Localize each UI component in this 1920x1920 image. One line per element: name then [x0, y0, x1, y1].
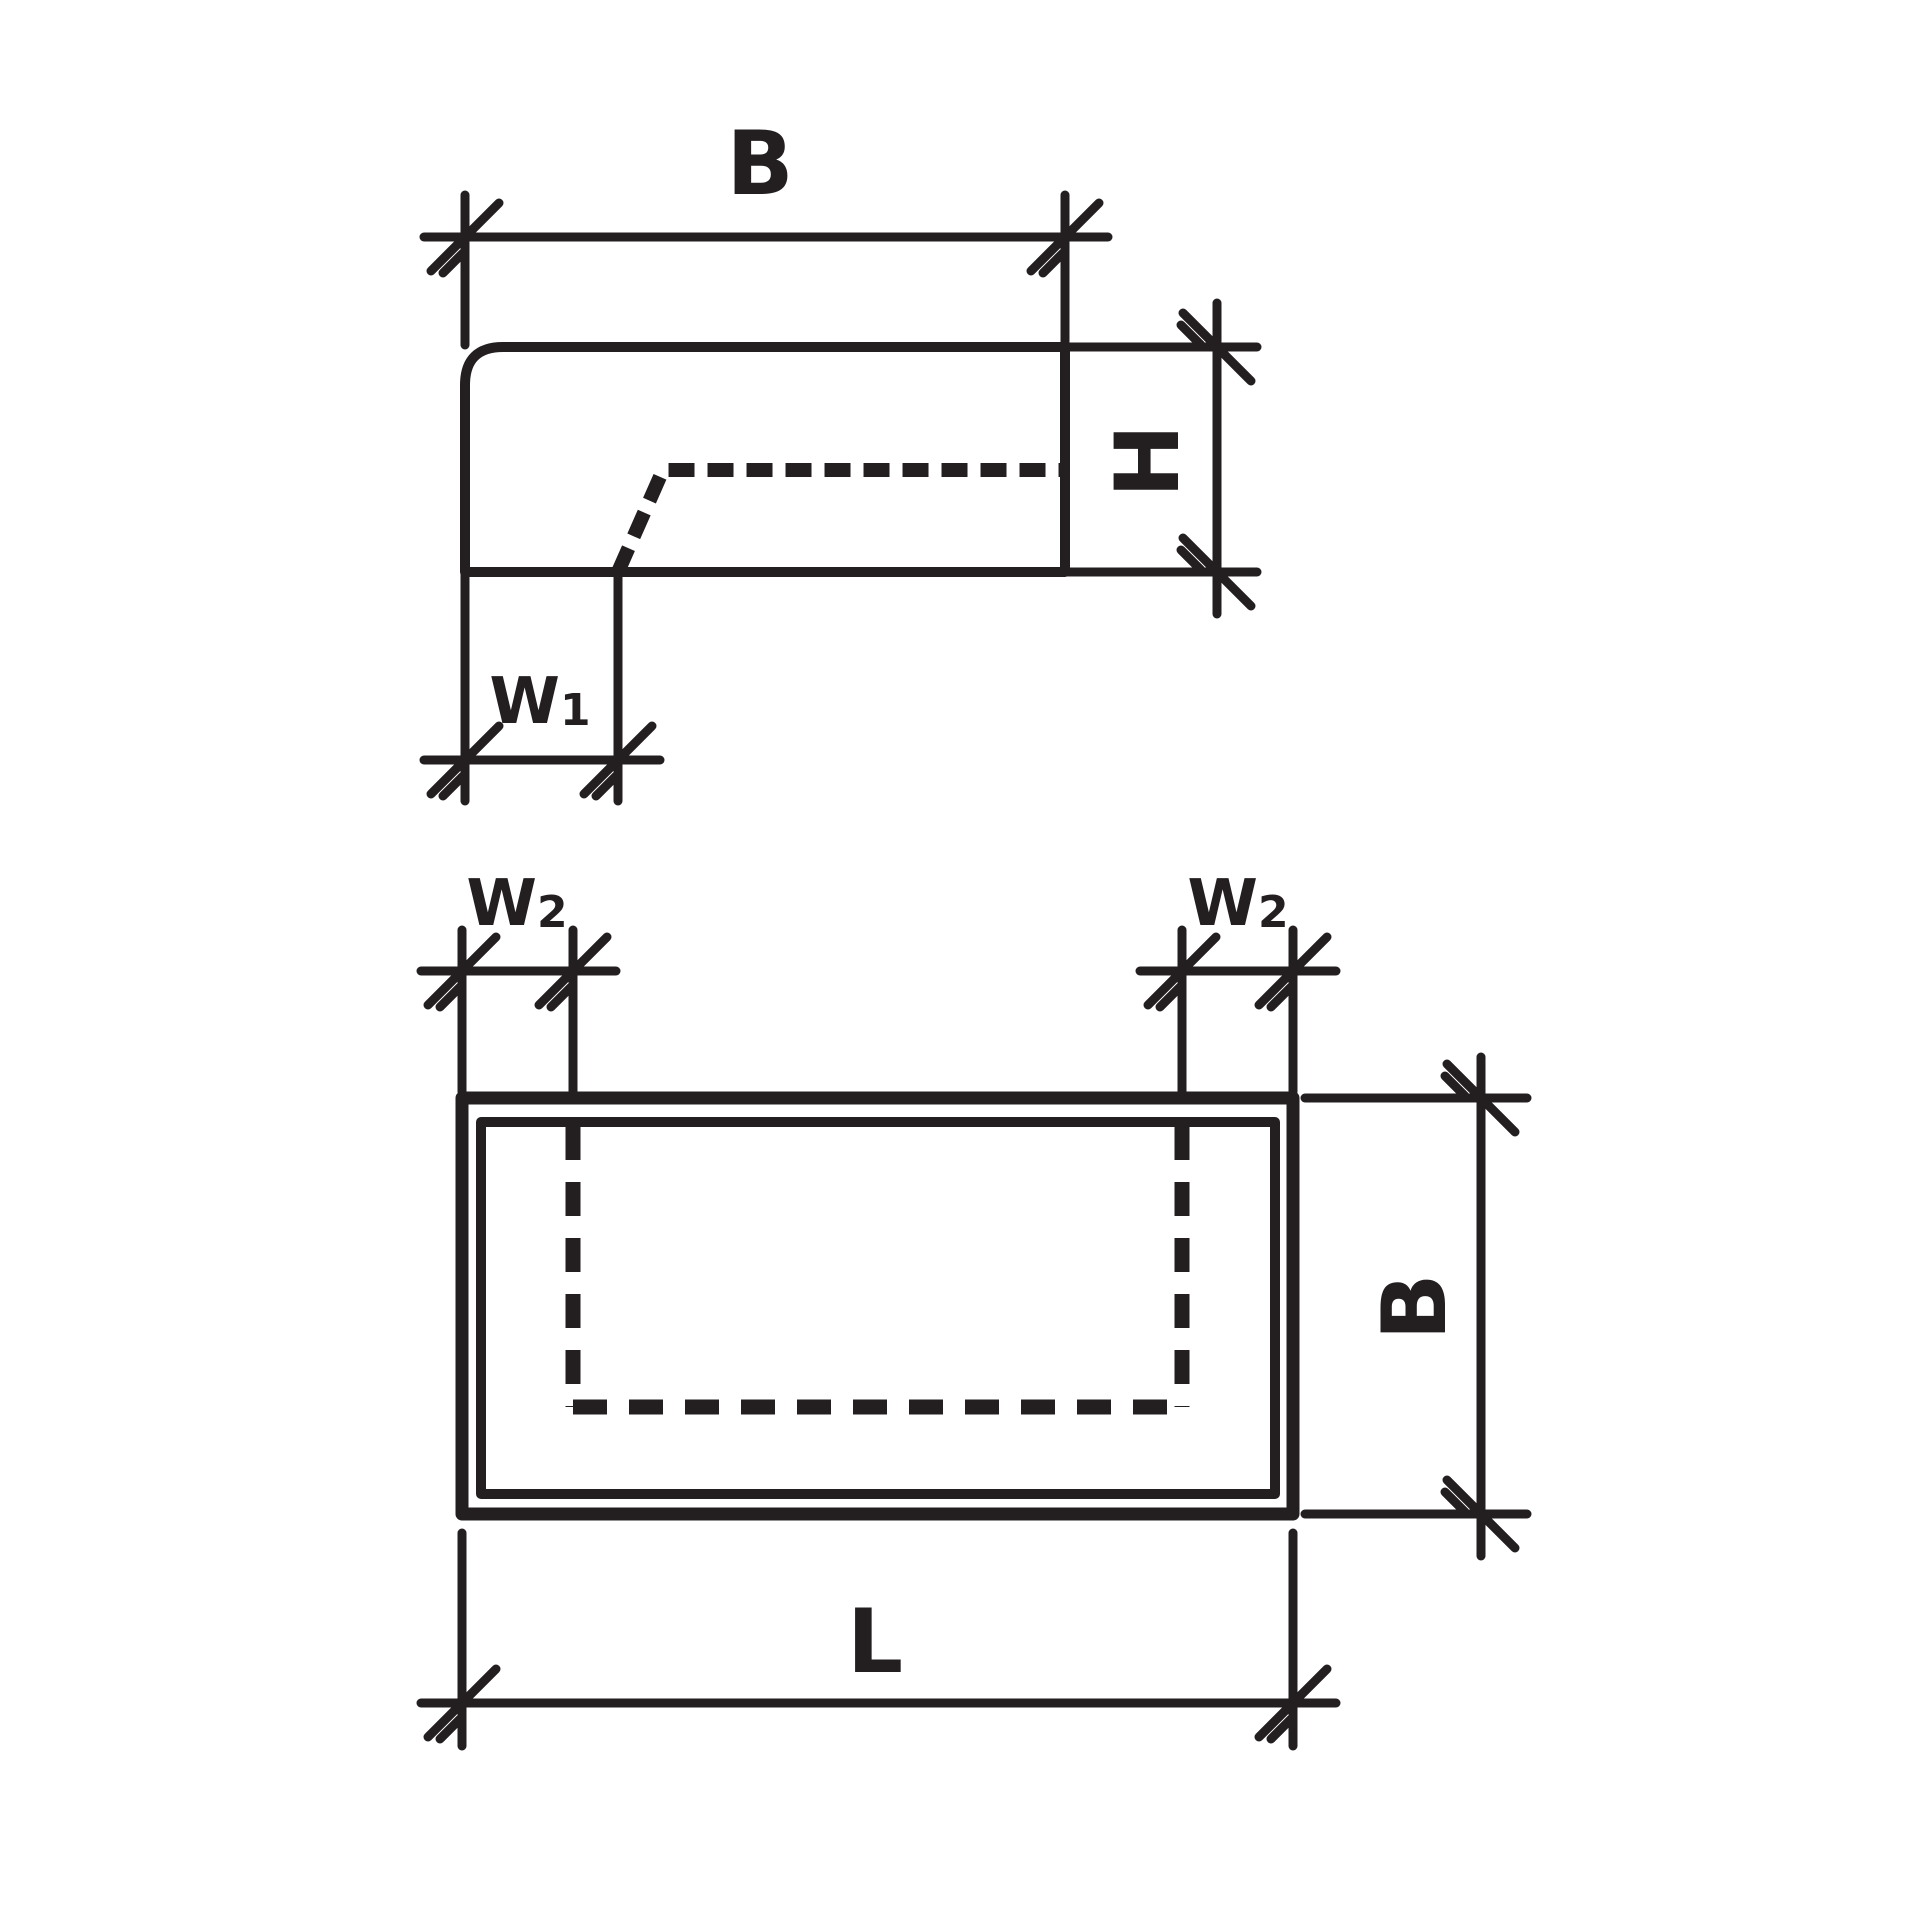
- dimension-label-b: B: [726, 112, 793, 215]
- dimension-b-plan: B: [1305, 1057, 1527, 1556]
- dimension-label-l: L: [847, 1590, 903, 1693]
- dimension-h: H: [1065, 303, 1257, 614]
- dimension-w2-left: W2: [421, 867, 616, 1092]
- end-view-outline: [465, 347, 1065, 572]
- dimension-w2-right: W2: [1140, 867, 1336, 1092]
- dimension-label-w1-base: W: [489, 665, 560, 739]
- dimension-b: B: [424, 112, 1108, 347]
- dimension-label-w2-right-base: W: [1187, 867, 1258, 941]
- dimension-label-w2-left-base: W: [466, 867, 537, 941]
- dimension-label-w1: W1: [489, 665, 590, 739]
- plan-outer-outline: [462, 1098, 1293, 1514]
- dimension-label-h: H: [1096, 424, 1199, 498]
- dimension-label-b-plan: B: [1363, 1273, 1466, 1340]
- dimension-w1: W1: [424, 572, 660, 801]
- end-view-hidden-edge: [618, 470, 1065, 572]
- dimension-label-w2-left: W2: [466, 867, 567, 941]
- end-view: B H W1: [424, 112, 1257, 801]
- dimension-label-w2-left-sub: 2: [537, 887, 568, 938]
- dimension-label-w1-sub: 1: [560, 685, 591, 736]
- plan-inner-outline: [481, 1122, 1275, 1494]
- drawing-page: B H W1: [0, 0, 1920, 1920]
- dimension-label-w2-right-sub: 2: [1258, 887, 1289, 938]
- plan-view: W2 W2 B: [421, 867, 1527, 1746]
- dimension-l: L: [421, 1533, 1336, 1746]
- dimension-label-w2-right: W2: [1187, 867, 1288, 941]
- technical-drawing: B H W1: [0, 0, 1920, 1920]
